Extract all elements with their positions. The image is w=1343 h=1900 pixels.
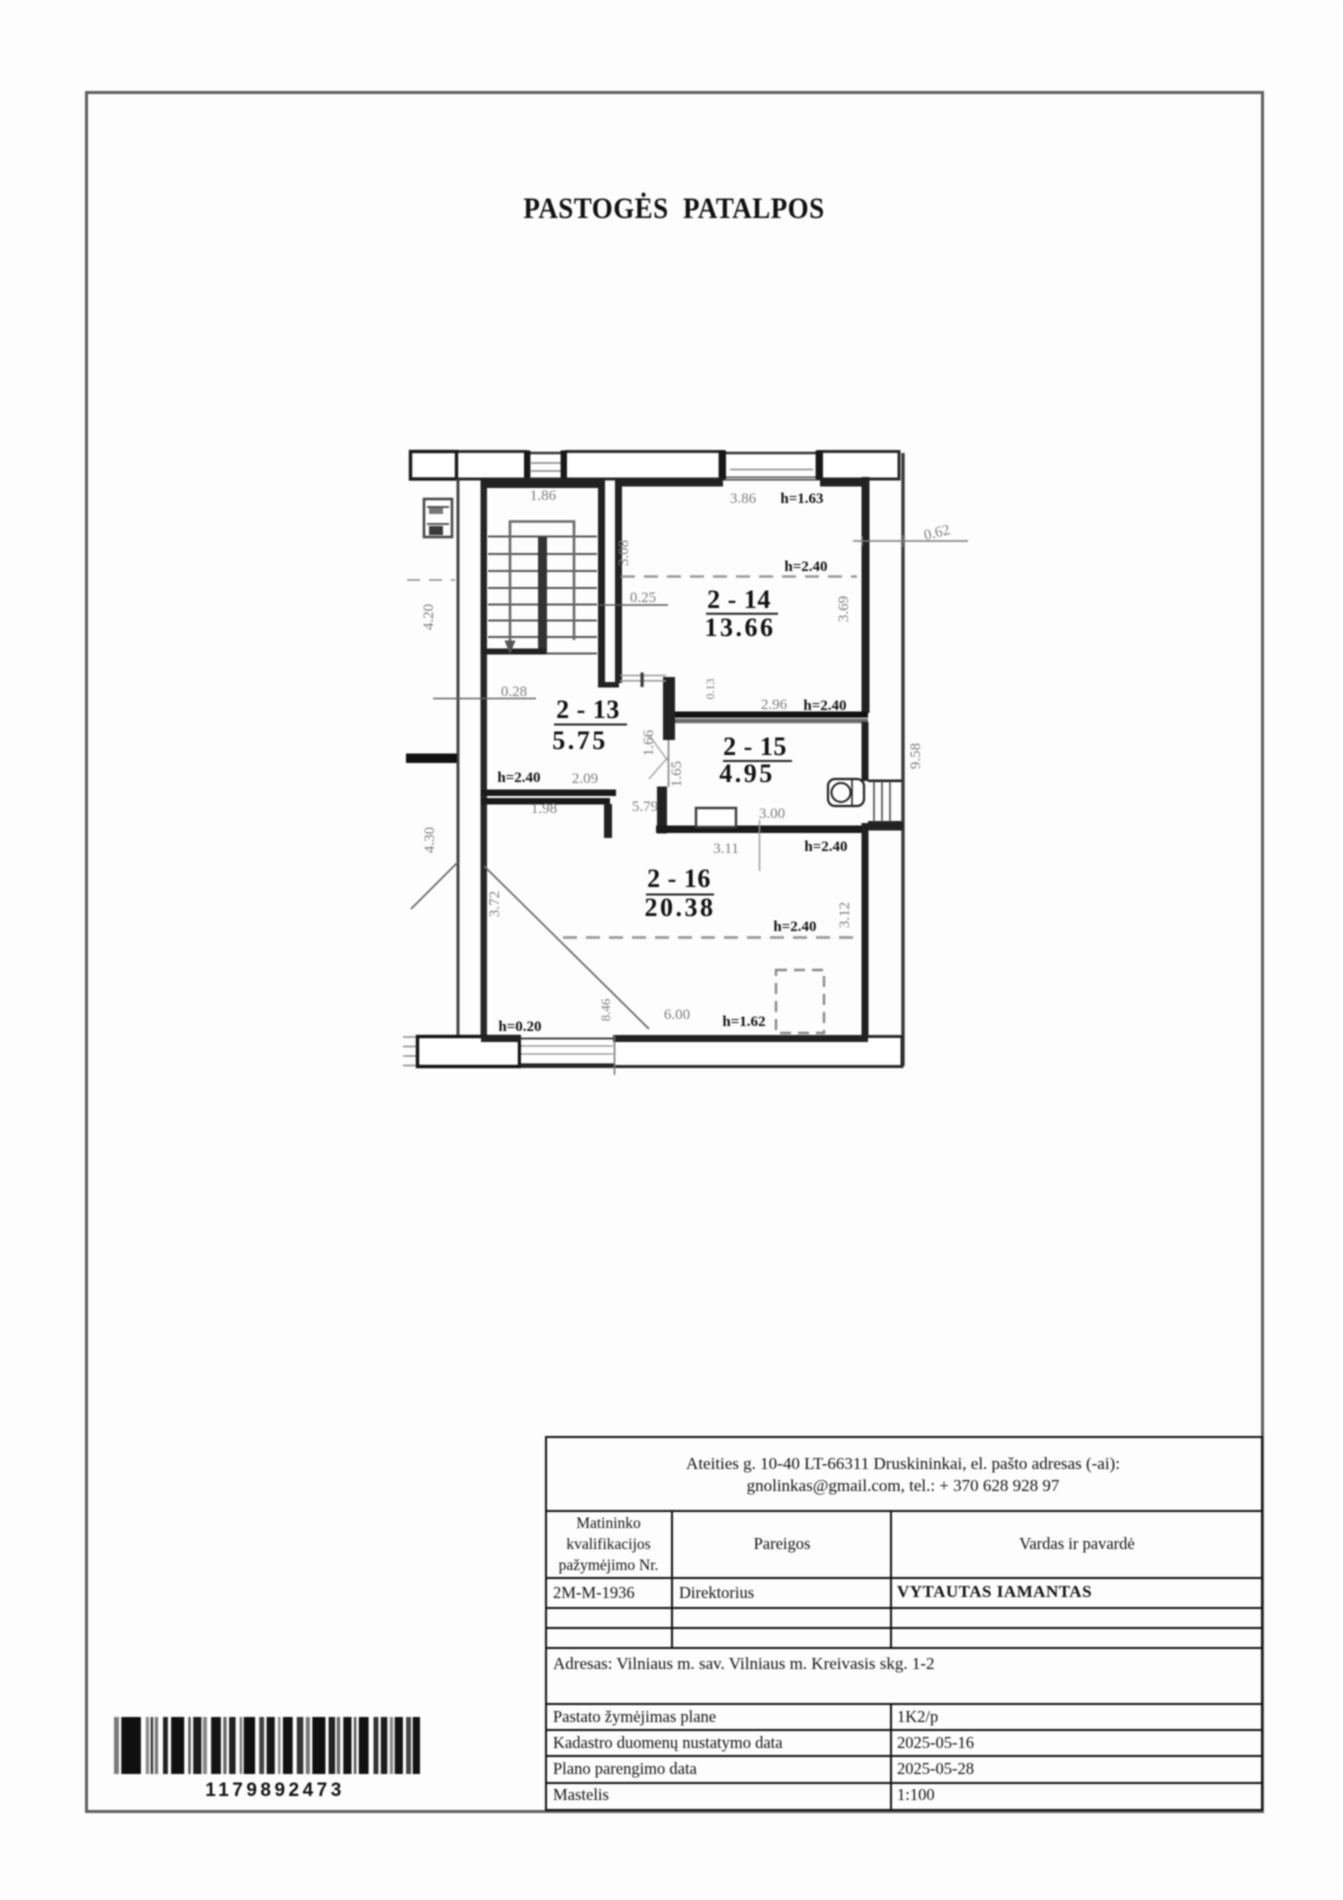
svg-text:5.75: 5.75 bbox=[552, 726, 608, 755]
svg-text:3.69: 3.69 bbox=[836, 596, 852, 622]
svg-text:1.66: 1.66 bbox=[641, 729, 657, 756]
svg-text:4.30: 4.30 bbox=[422, 827, 438, 853]
svg-text:h=2.40: h=2.40 bbox=[784, 559, 827, 575]
svg-text:h=1.62: h=1.62 bbox=[722, 1014, 765, 1030]
svg-text:h=2.40: h=2.40 bbox=[804, 839, 847, 855]
svg-text:5.79: 5.79 bbox=[632, 799, 658, 815]
svg-text:3.08: 3.08 bbox=[616, 540, 632, 566]
svg-text:2 - 14: 2 - 14 bbox=[707, 585, 771, 614]
svg-text:h=2.40: h=2.40 bbox=[497, 770, 540, 786]
svg-text:4.20: 4.20 bbox=[421, 604, 437, 630]
svg-text:0.28: 0.28 bbox=[501, 684, 527, 700]
svg-text:6.00: 6.00 bbox=[664, 1007, 690, 1023]
svg-text:1.98: 1.98 bbox=[531, 801, 557, 817]
svg-text:2.96: 2.96 bbox=[761, 697, 788, 713]
svg-text:h=1.63: h=1.63 bbox=[780, 491, 823, 507]
svg-text:2 - 13: 2 - 13 bbox=[556, 695, 620, 724]
svg-text:3.00: 3.00 bbox=[759, 806, 785, 822]
svg-text:20.38: 20.38 bbox=[645, 893, 716, 922]
svg-text:1.65: 1.65 bbox=[669, 761, 685, 787]
svg-text:h=2.40: h=2.40 bbox=[803, 698, 846, 714]
svg-text:8.46: 8.46 bbox=[598, 998, 613, 1021]
svg-text:3.11: 3.11 bbox=[713, 841, 739, 857]
svg-text:2 - 16: 2 - 16 bbox=[647, 864, 711, 893]
svg-text:3.86: 3.86 bbox=[730, 491, 757, 507]
svg-text:h=2.40: h=2.40 bbox=[773, 919, 816, 935]
svg-text:3.72: 3.72 bbox=[487, 891, 503, 917]
svg-text:h=0.20: h=0.20 bbox=[498, 1019, 541, 1035]
svg-text:13.66: 13.66 bbox=[705, 613, 776, 642]
svg-text:9.58: 9.58 bbox=[908, 743, 924, 769]
svg-text:2 - 15: 2 - 15 bbox=[723, 732, 787, 761]
svg-text:2.09: 2.09 bbox=[572, 771, 598, 787]
svg-text:1.86: 1.86 bbox=[530, 488, 557, 504]
svg-text:4.95: 4.95 bbox=[719, 759, 775, 788]
svg-text:0.13: 0.13 bbox=[703, 679, 717, 700]
svg-text:3.12: 3.12 bbox=[837, 902, 853, 928]
svg-text:0.25: 0.25 bbox=[630, 590, 656, 606]
